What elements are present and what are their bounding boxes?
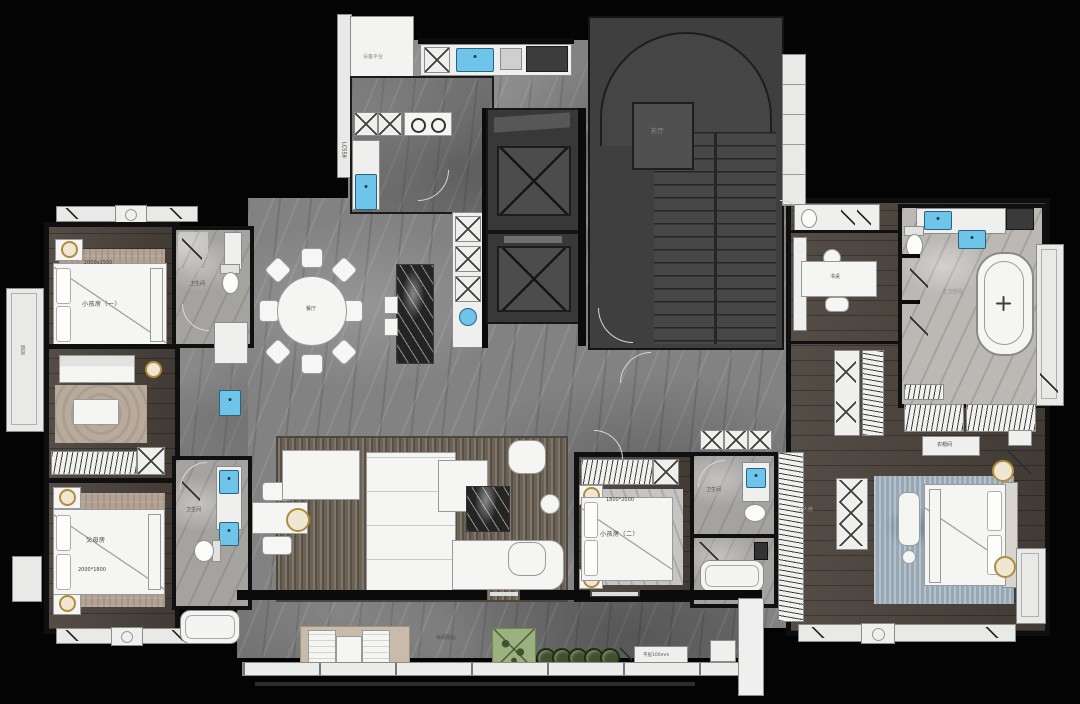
lounge-table	[73, 399, 119, 425]
hatch-mark	[1040, 371, 1058, 395]
stairwell: 前厅	[588, 16, 784, 350]
bed-runner	[148, 514, 161, 590]
shower-glass-mark	[182, 236, 202, 262]
parents-room: 父母房 2000*1800	[44, 478, 180, 634]
floor-tile	[724, 430, 748, 450]
bay-window: 飘窗	[6, 288, 44, 432]
cabinet-tile	[455, 276, 481, 302]
parents-bathroom: 卫生间	[172, 456, 252, 610]
casement-mark	[65, 208, 79, 219]
parents-label: 父母房	[86, 538, 106, 545]
toilet	[222, 272, 239, 294]
armchair-wide	[282, 450, 360, 500]
casement-mark	[811, 627, 825, 638]
shower-area	[178, 232, 208, 268]
oval-bathtub	[976, 252, 1034, 356]
bay-window-small	[1016, 548, 1046, 624]
bay-window-right	[1036, 244, 1064, 406]
bed-runner	[150, 268, 163, 342]
cloak-rack	[904, 404, 964, 432]
floor-tile	[748, 430, 772, 450]
balcony-note: 平层100mm	[643, 654, 669, 659]
parents-bed-size: 2000*1800	[78, 568, 106, 574]
bay-window-inner	[1021, 553, 1039, 617]
elevator-shaft	[486, 108, 584, 232]
bathtub	[180, 610, 240, 644]
corridor-vanity	[214, 322, 248, 364]
armchair	[508, 542, 546, 576]
planter-icon	[872, 628, 885, 641]
cabinet-dark	[1006, 208, 1034, 230]
pillow	[56, 554, 71, 590]
lounge-chair	[308, 630, 336, 665]
balcony-step-edge	[255, 682, 695, 686]
foyer-room: 前厅	[632, 102, 694, 170]
shower-glass-mark	[698, 542, 720, 560]
sink	[219, 470, 239, 494]
fridge	[526, 46, 568, 72]
bathroom-label: 卫生间	[706, 488, 721, 494]
gold-lamp-icon	[61, 241, 78, 258]
kitchen-side-sink	[355, 174, 377, 210]
window-band	[798, 624, 1016, 642]
dining-table: 餐厅	[277, 276, 347, 346]
kids1-label: 小孩房（一）	[82, 302, 121, 309]
sink	[924, 211, 952, 230]
elevator-cab	[497, 146, 571, 216]
burner-icon	[431, 118, 446, 133]
cabinet-dark	[754, 542, 768, 560]
shower-glass-mark	[182, 474, 200, 508]
display-cabinet	[836, 478, 868, 550]
elevator-cab	[497, 246, 571, 312]
floor-tile	[700, 430, 724, 450]
lounge-chair	[362, 630, 390, 665]
cloak-rack	[966, 404, 1036, 432]
cabinet-tile	[137, 447, 165, 475]
dining-chair	[259, 300, 279, 322]
bathroom-label: 卫生间	[190, 282, 205, 288]
gold-compass-icon	[286, 508, 310, 532]
sliding-door	[592, 592, 638, 596]
pillow	[56, 306, 71, 342]
shoe-rack-mark	[857, 208, 871, 227]
door-arc	[698, 460, 725, 487]
tool-mark	[620, 646, 632, 662]
lounge-sofa	[59, 355, 135, 383]
casement-mark	[65, 630, 79, 641]
appliance	[500, 48, 522, 70]
desk-chair	[262, 536, 292, 555]
bay-window-inner	[11, 293, 37, 425]
window-band	[56, 628, 198, 644]
family-lounge	[44, 344, 180, 484]
wall	[237, 590, 487, 600]
corridor-closet	[778, 452, 804, 622]
lounge-table	[336, 636, 362, 664]
entry-corridor	[782, 54, 806, 206]
gold-lamp-icon	[59, 489, 76, 506]
partition	[902, 300, 920, 304]
elevator-door-sill	[504, 236, 562, 243]
planter-icon	[125, 209, 137, 221]
shoe-rack-mark	[841, 208, 855, 227]
shower-glass-mark	[910, 308, 928, 344]
cabinet-tile	[653, 459, 679, 485]
cabinet-tile	[424, 47, 450, 73]
gold-ceiling-icon	[994, 556, 1016, 578]
window-tag: LC558	[340, 142, 346, 158]
master-chaise	[898, 492, 920, 546]
marble-feature-panel	[396, 264, 434, 364]
dining-chair	[301, 248, 323, 268]
sliding-door	[490, 592, 518, 596]
window-band	[56, 206, 198, 222]
bathtub	[700, 560, 764, 592]
bench	[1008, 430, 1032, 446]
toilet	[744, 504, 766, 522]
wardrobe	[581, 459, 653, 485]
elevator-shaft	[486, 232, 584, 324]
cloakroom-tag: 衣帽间	[922, 436, 980, 456]
cloakroom-label: 衣帽间	[937, 443, 952, 449]
utility-box	[710, 640, 736, 662]
kids-room-2: 1800*2000 小孩房（二）	[574, 452, 698, 602]
study-room: 书桌	[788, 230, 904, 344]
bathtub-inner	[185, 615, 235, 639]
wall	[520, 590, 590, 600]
pillow	[987, 491, 1002, 531]
casement-mark	[985, 627, 999, 638]
cabinet-x-cell	[838, 502, 864, 524]
cabinet-x-cell	[838, 524, 864, 546]
toilet	[194, 540, 214, 562]
pillow	[584, 540, 598, 576]
cabinet-tile	[378, 112, 402, 136]
window-planter	[111, 627, 143, 646]
wall	[578, 108, 586, 346]
closet-x-cell	[836, 393, 856, 431]
cabinet-x-cell	[838, 480, 864, 502]
corridor-sink	[219, 390, 241, 416]
study-chair	[825, 297, 849, 312]
balcony-label: 休闲阳台	[436, 636, 456, 642]
lounge-closet	[51, 451, 137, 475]
parents-bed: 父母房 2000*1800	[53, 509, 165, 595]
stool	[384, 318, 398, 336]
kids1-bed: 2000x1500 小孩房（一）	[53, 263, 167, 347]
burner-icon	[411, 118, 426, 133]
utility-column	[738, 598, 764, 696]
coffee-table-marble	[466, 486, 510, 532]
kids2-label: 小孩房（二）	[600, 532, 639, 539]
kids2-bed: 1800*2000 小孩房（二）	[581, 497, 673, 581]
storage-row	[794, 204, 880, 232]
master-bathroom: 主卫空间	[898, 204, 1046, 408]
study-desk-label: 书桌	[830, 275, 840, 281]
side-table	[540, 494, 560, 514]
pillow	[56, 515, 71, 551]
toilet	[801, 209, 817, 228]
foyer-label: 前厅	[651, 129, 664, 136]
dining-label: 餐厅	[306, 307, 316, 313]
bay-window-small	[12, 556, 42, 602]
door-arc	[598, 308, 633, 343]
bay-window-label: 飘窗	[19, 345, 25, 355]
sink	[958, 230, 986, 249]
bathtub-inner	[705, 565, 759, 587]
shower-bench	[904, 384, 944, 400]
cabinet-tile	[455, 216, 481, 242]
study-desk: 书桌	[801, 261, 877, 297]
balcony-railing	[242, 662, 764, 676]
gold-ceiling-icon	[992, 460, 1014, 482]
sink	[219, 522, 239, 546]
shower-glass-mark	[910, 260, 928, 296]
bar-sink	[459, 308, 477, 326]
elevator-door-sill	[494, 112, 570, 132]
pillow	[56, 268, 71, 304]
equipment-platform-label: 设备平台	[363, 55, 383, 61]
cabinet-tile	[354, 112, 378, 136]
floor-plan: LC558 设备平台 前厅	[0, 0, 1080, 704]
closet-x-cell	[836, 353, 856, 391]
gold-lamp-icon	[145, 361, 162, 378]
gold-lamp-icon	[59, 595, 76, 612]
pillow	[584, 502, 598, 538]
dining-chair	[301, 354, 323, 374]
kitchen-sink	[456, 48, 494, 72]
stool	[384, 296, 398, 314]
sink	[746, 468, 766, 488]
cabinet-tile	[455, 246, 481, 272]
kids1-bed-size: 2000x1500	[84, 261, 112, 267]
window-planter	[861, 623, 895, 644]
master-room-label: 主人房	[798, 508, 813, 514]
kids2-bed-size: 1800*2000	[606, 498, 634, 504]
bed-runner	[929, 489, 941, 583]
stair-divider	[714, 132, 717, 344]
floor-lamp	[902, 550, 916, 564]
casement-mark	[169, 208, 183, 219]
armchair	[508, 440, 546, 474]
stove	[404, 112, 452, 136]
kids2-bathroom: 卫生间	[690, 452, 778, 538]
hanging-rail	[862, 350, 884, 436]
closet-column	[834, 350, 860, 436]
bathroom-label: 卫生间	[186, 508, 201, 514]
partition	[902, 254, 920, 258]
door-arc	[182, 304, 209, 331]
master-bath-label: 主卫空间	[942, 290, 962, 296]
planter-icon	[121, 631, 133, 643]
